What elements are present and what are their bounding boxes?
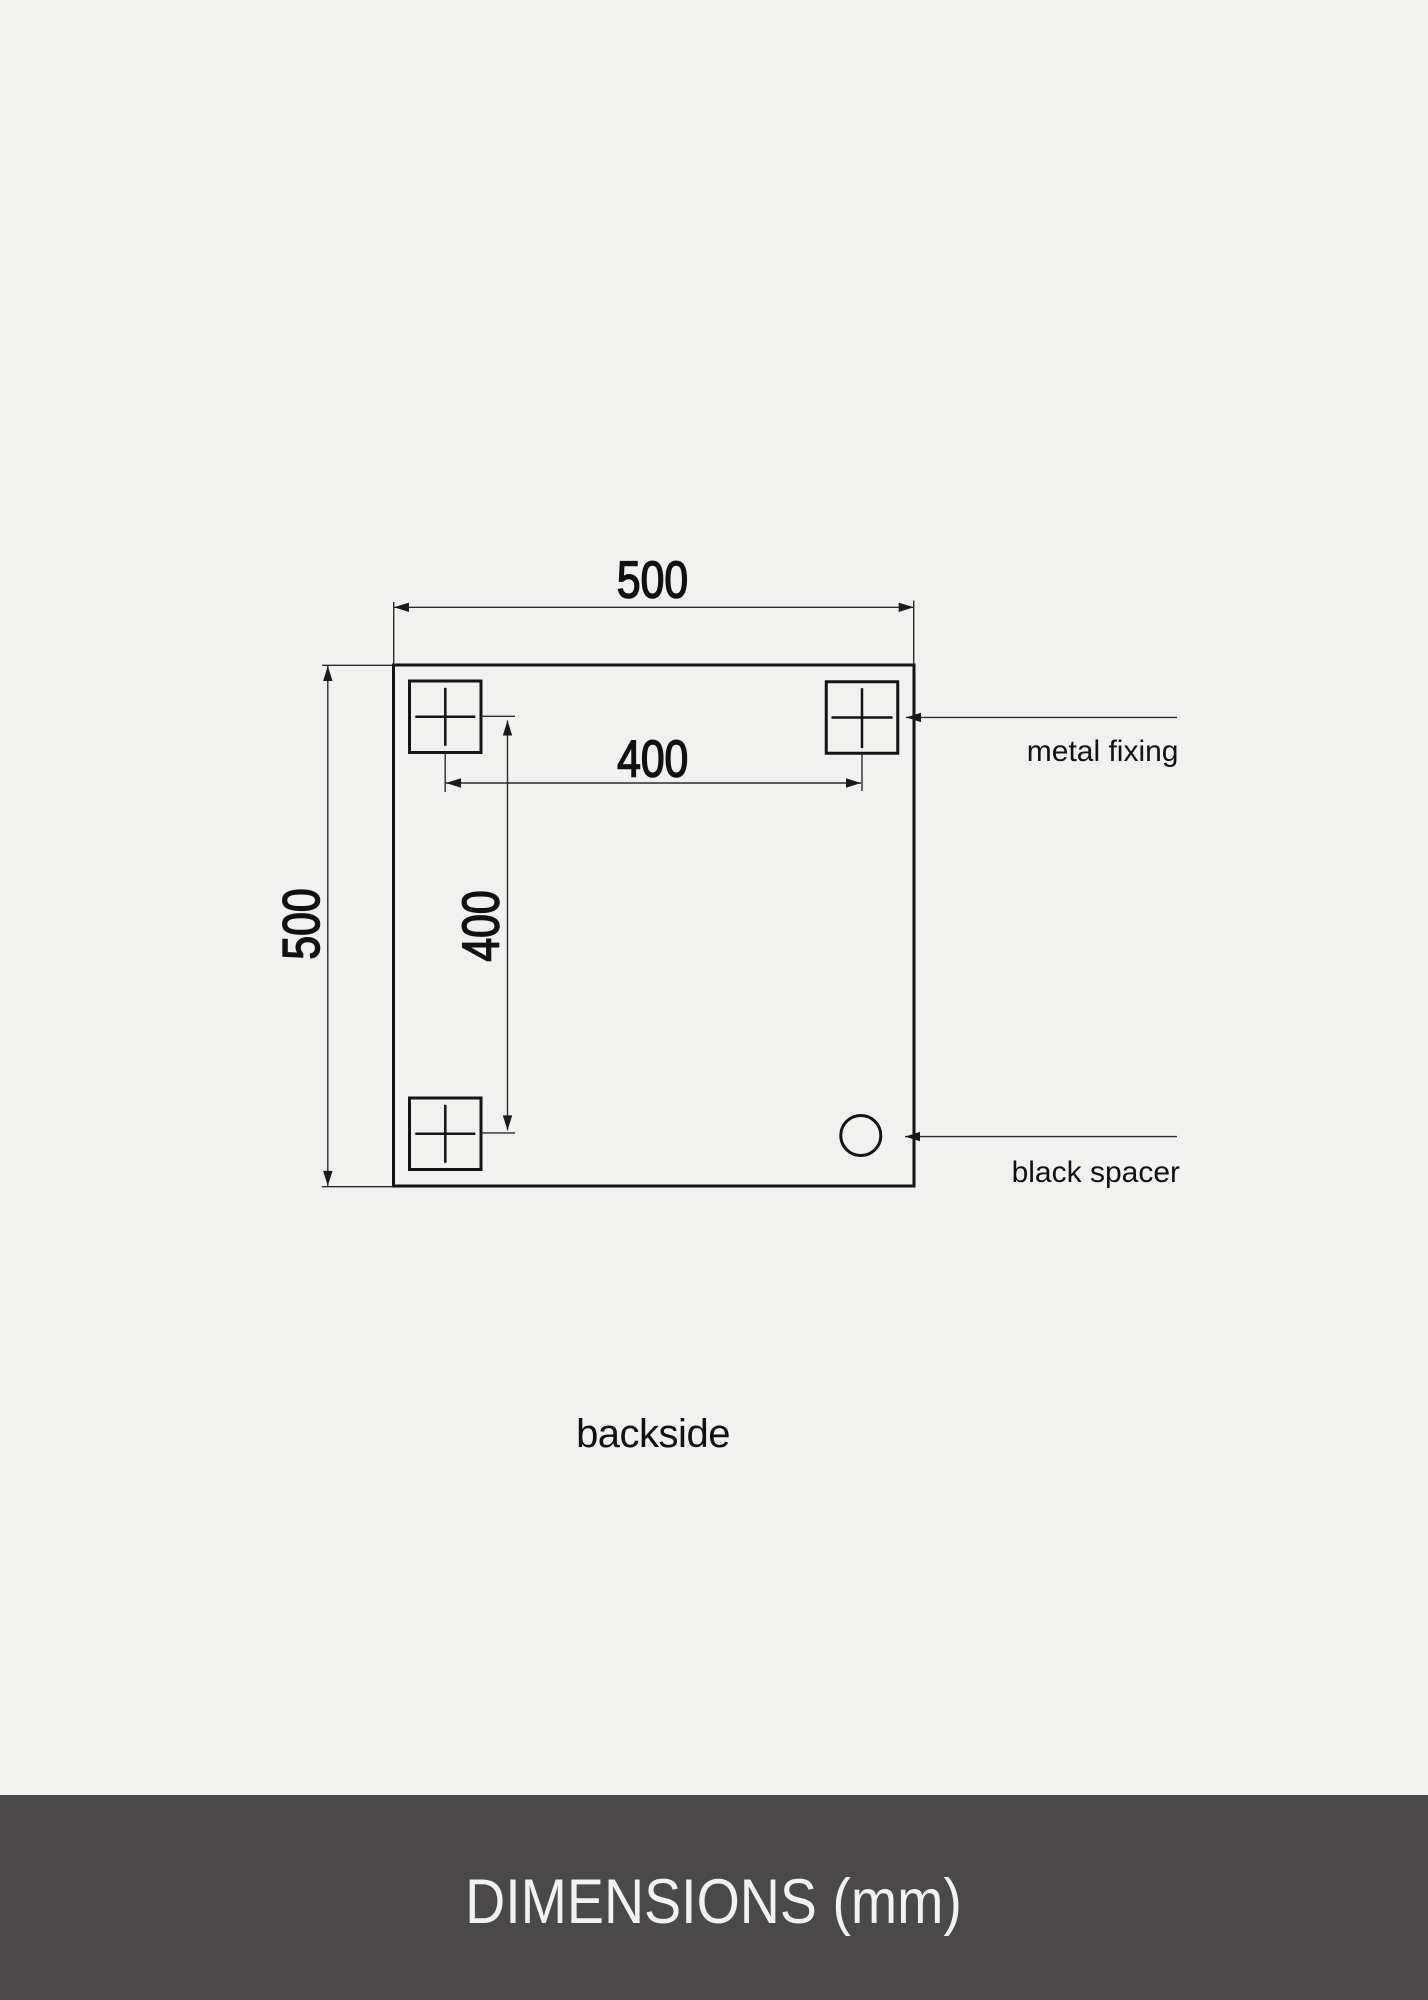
svg-text:black spacer: black spacer (1012, 1156, 1180, 1189)
svg-text:backside: backside (576, 1412, 730, 1456)
svg-text:500: 500 (617, 552, 688, 610)
svg-text:400: 400 (453, 890, 511, 961)
svg-text:metal fixing: metal fixing (1027, 735, 1179, 768)
svg-text:DIMENSIONS (mm): DIMENSIONS (mm) (465, 1866, 962, 1937)
svg-text:500: 500 (273, 888, 331, 959)
svg-text:400: 400 (617, 731, 688, 789)
